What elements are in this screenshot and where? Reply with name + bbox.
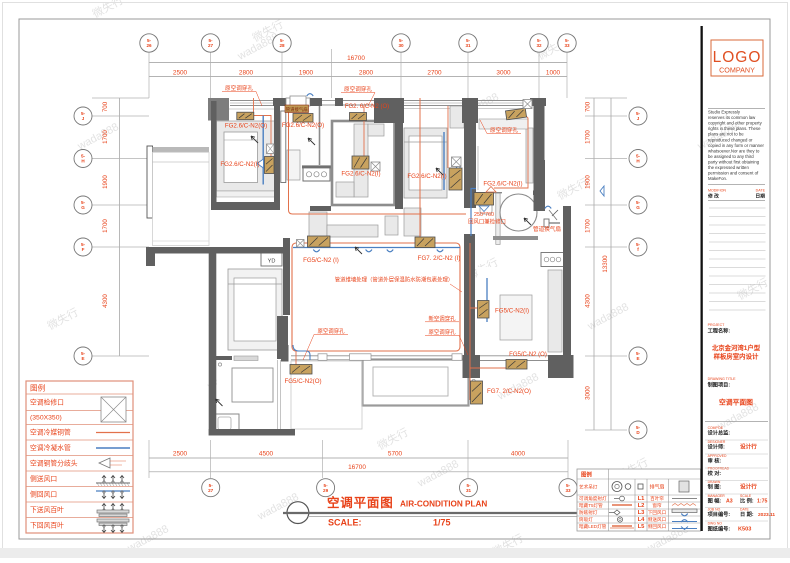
svg-text:侧送风口: 侧送风口 (648, 516, 667, 523)
svg-text:制 图:: 制 图: (708, 482, 722, 490)
svg-text:FG5/C-N2(O): FG5/C-N2(O) (284, 378, 321, 385)
svg-text:reserves its common law: reserves its common law (708, 115, 756, 120)
svg-text:2700: 2700 (427, 70, 442, 77)
svg-text:be assigned to any third: be assigned to any third (708, 154, 754, 159)
svg-text:plans are not to be: plans are not to be (708, 132, 744, 137)
svg-text:MANAGER: MANAGER (708, 494, 726, 498)
svg-text:A3: A3 (726, 499, 733, 505)
svg-text:33: 33 (565, 488, 571, 493)
svg-text:250*760: 250*760 (474, 212, 494, 218)
svg-text:31: 31 (465, 43, 471, 48)
svg-text:E: E (81, 356, 84, 361)
svg-text:SCALE: SCALE (740, 494, 752, 498)
svg-text:JOB NO: JOB NO (708, 508, 721, 512)
svg-text:2500: 2500 (173, 70, 188, 77)
svg-text:侧送风口: 侧送风口 (30, 474, 57, 483)
svg-text:PROOFREAD: PROOFREAD (708, 467, 730, 471)
svg-text:窗帘: 窗帘 (652, 502, 662, 509)
svg-text:空调冷凝水管: 空调冷凝水管 (30, 443, 71, 452)
svg-text:侧回风口: 侧回风口 (648, 523, 667, 530)
svg-text:原空调穿孔: 原空调穿孔 (318, 327, 346, 335)
svg-text:Studio Expressly: Studio Expressly (708, 110, 741, 115)
svg-text:permission and consent of: permission and consent of (708, 171, 759, 176)
svg-text:日期: 日期 (755, 193, 765, 200)
svg-text:5700: 5700 (388, 451, 403, 458)
svg-text:4000: 4000 (511, 451, 526, 458)
svg-text:16700: 16700 (347, 55, 365, 62)
svg-text:1700: 1700 (585, 219, 592, 233)
svg-text:FG7. 2/C-N2 (I): FG7. 2/C-N2 (I) (418, 255, 461, 262)
svg-text:设计行: 设计行 (740, 443, 757, 451)
svg-text:2800: 2800 (359, 70, 374, 77)
svg-text:FG7. 2/C-N2(O): FG7. 2/C-N2(O) (487, 388, 531, 395)
svg-text:COMP'DE: COMP'DE (708, 426, 724, 430)
svg-text:L4: L4 (638, 517, 646, 523)
svg-text:排气扇: 排气扇 (649, 484, 664, 491)
svg-text:reproduced changed or: reproduced changed or (708, 137, 753, 142)
svg-text:33: 33 (564, 43, 570, 48)
svg-text:31: 31 (466, 488, 472, 493)
svg-text:30: 30 (398, 43, 404, 48)
svg-text:空调铜管分歧头: 空调铜管分歧头 (30, 459, 78, 468)
svg-text:1/75: 1/75 (433, 518, 451, 528)
svg-text:AIR-CONDITION PLAN: AIR-CONDITION PLAN (400, 500, 487, 509)
svg-text:FG2.6/C-N2(I): FG2.6/C-N2(I) (220, 161, 259, 168)
svg-text:新空调穿孔: 新空调穿孔 (429, 315, 457, 323)
svg-text:1900: 1900 (102, 175, 109, 189)
svg-text:L2: L2 (638, 503, 645, 509)
svg-text:管道维墙处理（管道外层保温防水防潮包裹处理）: 管道维墙处理（管道外层保温防水防潮包裹处理） (335, 276, 454, 284)
svg-text:百叶帘: 百叶帘 (650, 495, 664, 502)
svg-text:筒吸灯: 筒吸灯 (579, 516, 593, 523)
svg-text:FG2.6/C-N2(I): FG2.6/C-N2(I) (483, 181, 522, 188)
svg-text:F: F (82, 247, 85, 252)
svg-text:E: E (636, 356, 639, 361)
svg-text:校 对:: 校 对: (708, 469, 722, 477)
svg-text:日 期:: 日 期: (740, 510, 754, 518)
svg-text:审 核:: 审 核: (708, 456, 722, 464)
svg-text:暗藏LED灯管: 暗藏LED灯管 (579, 523, 607, 530)
svg-text:图纸编号:: 图纸编号: (708, 525, 731, 533)
svg-text:SCALE:: SCALE: (328, 518, 362, 528)
svg-text:16700: 16700 (348, 464, 366, 471)
svg-text:侧回风口: 侧回风口 (30, 490, 57, 499)
svg-text:FG5/C-N2 (O): FG5/C-N2 (O) (509, 352, 547, 358)
svg-text:1700: 1700 (102, 219, 109, 233)
svg-text:4300: 4300 (102, 294, 109, 308)
svg-text:COMPANY: COMPANY (719, 66, 755, 75)
svg-text:PROJECT: PROJECT (708, 323, 726, 327)
svg-text:APPROVED: APPROVED (708, 454, 727, 458)
svg-text:1900: 1900 (299, 70, 314, 77)
svg-text:设计总监:: 设计总监: (708, 428, 731, 436)
svg-text:比 例:: 比 例: (740, 497, 754, 505)
svg-text:图例: 图例 (581, 471, 592, 479)
svg-text:the expressed written: the expressed written (708, 165, 749, 170)
svg-text:MODIFION: MODIFION (708, 189, 726, 193)
svg-text:设计行: 设计行 (740, 482, 757, 490)
svg-text:L3: L3 (638, 510, 646, 516)
svg-text:项目编号:: 项目编号: (708, 510, 731, 518)
svg-text:管道换气扇: 管道换气扇 (533, 225, 561, 233)
svg-text:艺术吊灯: 艺术吊灯 (579, 484, 598, 491)
svg-text:图 幅:: 图 幅: (708, 497, 722, 505)
svg-text:FG2.6/C-N2(O): FG2.6/C-N2(O) (282, 122, 324, 129)
svg-text:FG2.6/C-N2(O): FG2.6/C-N2(O) (225, 123, 267, 130)
svg-text:北京金河湾1户型: 北京金河湾1户型 (712, 343, 761, 352)
svg-text:2500: 2500 (173, 451, 188, 458)
svg-text:J: J (637, 116, 640, 121)
svg-text:DWG NO: DWG NO (708, 522, 723, 526)
svg-text:700: 700 (585, 101, 592, 112)
svg-text:MakeFon.: MakeFon. (708, 176, 727, 181)
svg-text:2023.11: 2023.11 (758, 512, 775, 518)
svg-text:DATE: DATE (756, 189, 766, 193)
svg-text:空调冷媒铜管: 空调冷媒铜管 (30, 428, 71, 437)
svg-text:YD: YD (268, 259, 276, 265)
svg-text:G: G (81, 205, 85, 210)
svg-text:1900: 1900 (585, 175, 592, 189)
svg-text:设计师:: 设计师: (708, 443, 726, 451)
svg-text:防眩射灯: 防眩射灯 (579, 509, 598, 516)
svg-text:1000: 1000 (546, 70, 561, 77)
svg-text:修 改: 修 改 (707, 193, 719, 200)
svg-text:暗藏T5灯管: 暗藏T5灯管 (579, 502, 603, 509)
svg-text:party without first obtaining: party without first obtaining (708, 159, 760, 164)
svg-text:DRAWING TITLE: DRAWING TITLE (708, 377, 737, 381)
svg-text:G: G (636, 205, 640, 210)
svg-text:FG2.6/C-N2(I): FG2.6/C-N2(I) (407, 173, 446, 180)
svg-text:样板房室内设计: 样板房室内设计 (714, 352, 759, 361)
svg-text:制图项目:: 制图项目: (708, 381, 731, 389)
svg-text:空调平面图: 空调平面图 (719, 398, 753, 407)
svg-text:(350X350): (350X350) (30, 415, 62, 422)
svg-text:下送风百叶: 下送风百叶 (30, 505, 64, 514)
svg-text:1700: 1700 (102, 130, 109, 144)
svg-text:copied in any form or manner: copied in any form or manner (708, 143, 764, 148)
svg-text:L1: L1 (638, 496, 646, 502)
svg-text:工程名称:: 工程名称: (708, 327, 731, 335)
svg-text:13300: 13300 (602, 255, 609, 273)
svg-text:27: 27 (208, 488, 214, 493)
svg-text:27: 27 (208, 43, 214, 48)
svg-text:26: 26 (146, 43, 152, 48)
svg-text:L5: L5 (638, 524, 646, 530)
svg-text:28: 28 (279, 43, 285, 48)
svg-text:J: J (82, 116, 85, 121)
svg-text:4300: 4300 (585, 294, 592, 308)
svg-text:32: 32 (536, 43, 542, 48)
svg-text:原空调穿孔: 原空调穿孔 (490, 126, 518, 134)
svg-text:回风口兼检修口: 回风口兼检修口 (468, 218, 506, 226)
svg-text:DATE: DATE (740, 508, 750, 512)
svg-text:FG5/C-N2 (I): FG5/C-N2 (I) (303, 257, 339, 264)
svg-text:管道接气扇: 管道接气扇 (286, 106, 308, 113)
svg-text:copyright and other property: copyright and other property (708, 121, 763, 126)
svg-text:LOGO: LOGO (713, 49, 762, 66)
svg-text:图例: 图例 (30, 383, 46, 393)
svg-text:29: 29 (323, 488, 329, 493)
svg-text:原空调穿孔: 原空调穿孔 (344, 85, 372, 93)
svg-text:3000: 3000 (496, 70, 511, 77)
svg-text:1700: 1700 (585, 130, 592, 144)
svg-text:FG2. 6/C-N2 (O): FG2. 6/C-N2 (O) (345, 104, 389, 110)
svg-text:700: 700 (102, 101, 109, 112)
svg-text:下回风百叶: 下回风百叶 (30, 521, 64, 530)
svg-text:FG2.6/C-N2(I): FG2.6/C-N2(I) (341, 171, 380, 178)
svg-text:whatsoever.Nor are they to: whatsoever.Nor are they to (708, 148, 760, 153)
svg-text:原空调穿孔: 原空调穿孔 (429, 328, 457, 336)
svg-text:FG5/C-N2(I): FG5/C-N2(I) (495, 308, 529, 315)
svg-text:DESIGNER: DESIGNER (708, 440, 726, 444)
svg-text:4500: 4500 (259, 451, 274, 458)
svg-text:K503: K503 (738, 527, 751, 533)
svg-text:空调平面图: 空调平面图 (327, 495, 394, 510)
svg-text:3000: 3000 (585, 386, 592, 400)
svg-text:可调角度射灯: 可调角度射灯 (579, 495, 607, 502)
svg-text:空调检修口: 空调检修口 (30, 398, 64, 407)
svg-text:原空调穿孔: 原空调穿孔 (225, 84, 253, 92)
svg-text:2800: 2800 (239, 70, 254, 77)
svg-text:1:75: 1:75 (757, 499, 767, 505)
svg-text:rights in these plans. These: rights in these plans. These (708, 126, 761, 131)
